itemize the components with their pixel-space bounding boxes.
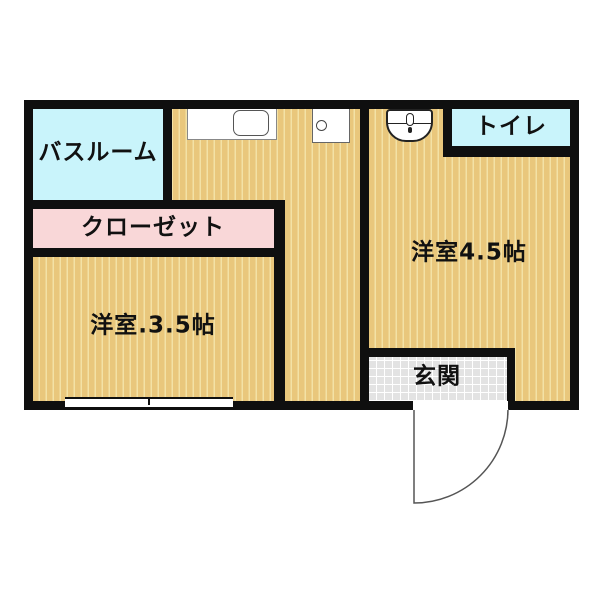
entrance-door-opening — [413, 401, 508, 410]
wall-toilet-bottom — [443, 146, 570, 157]
window-center-tick — [148, 399, 150, 405]
kitchen-sink-icon — [233, 110, 269, 136]
floor-plan: バスルーム クローゼット 洋室.3.5帖 洋室4.5帖 トイレ 玄関 — [24, 100, 579, 410]
room-label-western-3-5: 洋室.3.5帖 — [90, 315, 215, 338]
burner-icon — [316, 120, 327, 131]
toilet-bowl-icon — [386, 109, 433, 142]
wall-bathroom-right — [163, 109, 172, 209]
room-label-bathroom: バスルーム — [38, 142, 157, 165]
room-label-toilet: トイレ — [475, 116, 547, 139]
stove-icon — [312, 109, 350, 143]
room-label-closet: クローゼット — [81, 217, 225, 240]
wall-entrance-top — [360, 348, 515, 357]
toilet-flush-dot — [408, 127, 412, 133]
entrance-door-swing-icon — [404, 400, 520, 512]
room-label-western-4-5: 洋室4.5帖 — [411, 242, 527, 265]
wall-left-rooms-right — [274, 200, 285, 401]
wall-closet-bottom — [33, 248, 274, 257]
wall-center — [360, 109, 369, 401]
wall-entrance-right — [507, 348, 515, 401]
toilet-flush-handle-icon — [406, 113, 414, 126]
wall-closet-top — [33, 200, 285, 209]
room-label-entrance: 玄関 — [413, 366, 461, 389]
window-symbol — [65, 397, 233, 409]
